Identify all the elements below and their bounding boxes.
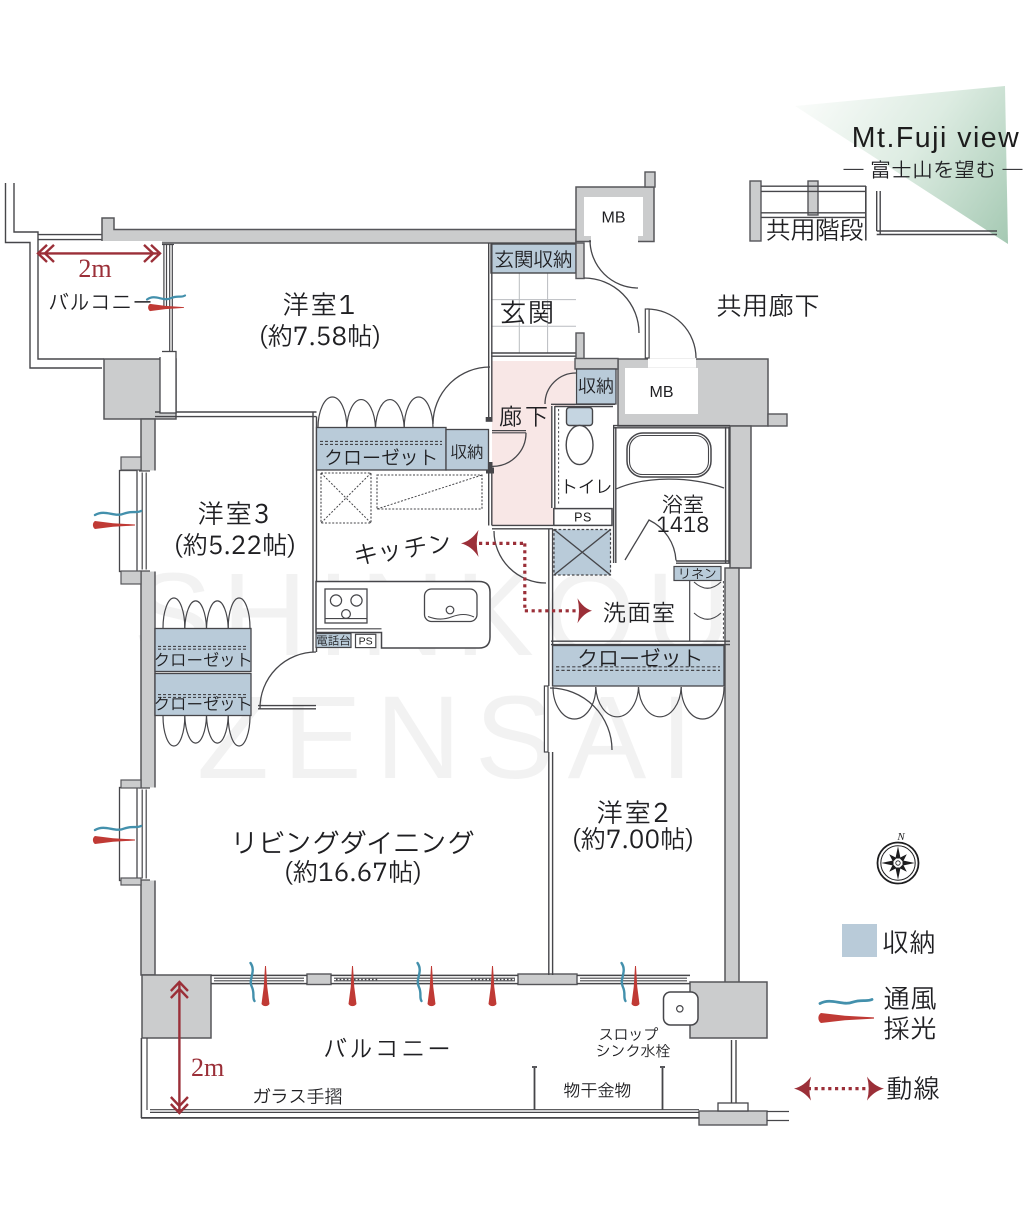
svg-text:ZENSAI: ZENSAI [197,672,707,804]
svg-text:PS: PS [359,636,373,648]
svg-text:Mt.Fuji view: Mt.Fuji view [852,122,1020,154]
svg-text:2m: 2m [78,254,111,283]
svg-text:PS: PS [574,511,592,525]
svg-text:MB: MB [602,210,626,227]
svg-text:N: N [896,831,905,843]
svg-text:MB: MB [650,384,674,401]
svg-text:2m: 2m [191,1053,224,1082]
